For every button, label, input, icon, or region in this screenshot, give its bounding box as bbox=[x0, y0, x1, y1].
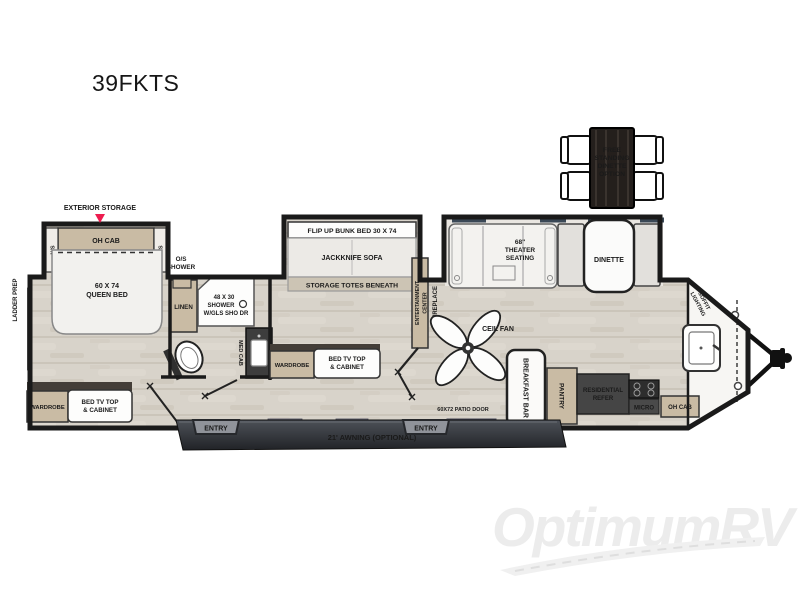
os-shower-label: O/S bbox=[176, 256, 187, 263]
dinette-chair bbox=[561, 172, 592, 200]
floorplan-page: OptimumRV 39FKTS FREE STANDING DINETTE bbox=[0, 0, 800, 600]
breakfast-bar-label: BREAKFAST BAR bbox=[522, 358, 529, 418]
booth-dinette: DINETTE bbox=[558, 220, 660, 292]
queen-bed-label: QUEEN BED bbox=[86, 292, 128, 299]
dinette-chair bbox=[632, 172, 663, 200]
ladder-prep-label: LADDER PREP bbox=[13, 278, 19, 321]
hitch bbox=[748, 334, 792, 386]
dinette-chair bbox=[561, 136, 592, 164]
shower-label: 48 X 30 bbox=[214, 295, 235, 301]
bed-tv-cabinet bbox=[68, 390, 132, 422]
dinette-chair bbox=[632, 136, 663, 164]
dinette-option-label: OPTION bbox=[599, 171, 625, 178]
watermark-logo: OptimumRV bbox=[492, 496, 798, 576]
cooktop bbox=[629, 380, 659, 398]
micro-label: MICRO bbox=[634, 406, 654, 412]
oh-cab-label: OH CAB bbox=[92, 238, 120, 245]
refer-label: REFER bbox=[593, 396, 614, 402]
ent-label: CENTER bbox=[423, 292, 429, 314]
queen-bed-label: 60 X 74 bbox=[95, 283, 119, 290]
shower-drain bbox=[240, 301, 247, 308]
floorplan-svg: OptimumRV 39FKTS FREE STANDING DINETTE bbox=[0, 0, 800, 600]
pantry-label: PANTRY bbox=[558, 383, 565, 410]
theater-seat bbox=[449, 224, 557, 288]
dinette-bench bbox=[634, 224, 660, 286]
os-shower-box bbox=[173, 279, 191, 288]
ceil-fan-label: CEIL FAN bbox=[482, 326, 514, 333]
dinette-option-label: FREE bbox=[603, 147, 622, 154]
entry-right-label: ENTRY bbox=[414, 426, 438, 433]
exterior-storage-label: EXTERIOR STORAGE bbox=[64, 205, 137, 212]
bed-tv-label: & CABINET bbox=[330, 364, 364, 371]
ent-label: ENTERTAINMENT bbox=[415, 280, 421, 325]
theater-label: 68" bbox=[515, 239, 525, 246]
soffit-light bbox=[735, 383, 742, 390]
awning-label: 21' AWNING (OPTIONAL) bbox=[328, 433, 417, 442]
patio-door-label: 60X72 PATIO DOOR bbox=[437, 407, 488, 413]
sink-drain bbox=[700, 347, 703, 350]
shower-label: W/GLS SHO DR bbox=[204, 311, 249, 317]
wardrobe-label: WARDROBE bbox=[30, 405, 65, 411]
bed-tv-label: BED TV TOP bbox=[81, 399, 118, 406]
bed-tv-label: BED TV TOP bbox=[328, 356, 365, 363]
totes-label: STORAGE TOTES BENEATH bbox=[306, 283, 398, 290]
refrigerator bbox=[577, 374, 629, 414]
awning-assembly: 21' AWNING (OPTIONAL) ENTRY ENTRY bbox=[176, 420, 566, 450]
entry-left-label: ENTRY bbox=[204, 426, 228, 433]
dinette-label: DINETTE bbox=[594, 257, 624, 264]
os-shower-label: SHOWER bbox=[167, 264, 196, 271]
fireplace-label: FIREPLACE bbox=[433, 286, 439, 320]
hitch-handle bbox=[780, 348, 785, 369]
shower-label: SHOWER bbox=[208, 303, 236, 309]
dinette-option-label: STANDING bbox=[595, 155, 630, 162]
theater-label: THEATER bbox=[505, 247, 536, 254]
linen-label: LINEN bbox=[174, 304, 193, 311]
bed-tv-label: & CABINET bbox=[83, 407, 117, 414]
dinette-bench bbox=[558, 224, 584, 286]
bunk-label: FLIP UP BUNK BED 30 X 74 bbox=[308, 228, 397, 235]
sofa-label: JACKKNIFE SOFA bbox=[321, 255, 382, 262]
page-title: 39FKTS bbox=[92, 70, 179, 96]
dinette-option-label: DINETTE bbox=[597, 163, 627, 170]
refer-label: RESIDENTIAL bbox=[583, 388, 623, 394]
med-cab-label: MED CAB bbox=[237, 340, 243, 366]
sink-basin bbox=[251, 340, 267, 366]
theater-label: SEATING bbox=[506, 255, 534, 262]
wardrobe-label: WARDROBE bbox=[275, 363, 310, 369]
dinette-table-booth bbox=[584, 220, 634, 292]
free-standing-dinette-option: FREE STANDING DINETTE OPTION bbox=[561, 128, 663, 208]
faucet bbox=[258, 335, 261, 338]
